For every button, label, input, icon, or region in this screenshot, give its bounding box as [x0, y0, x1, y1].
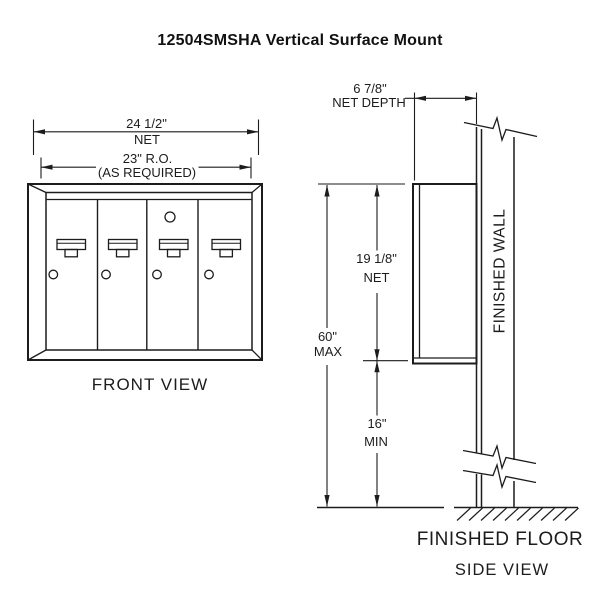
door-2-hardware: [102, 240, 137, 279]
overall-width-qualifier: NET: [87, 133, 207, 147]
front-view-label: FRONT VIEW: [90, 376, 210, 394]
card-pull-tab: [168, 250, 180, 257]
card-pull-tab: [65, 250, 77, 257]
finished-floor-label: FINISHED FLOOR: [400, 530, 600, 550]
floor-clearance-qualifier: MIN: [316, 435, 436, 449]
door-4-hardware: [205, 240, 241, 279]
rough-opening-qualifier: (AS REQUIRED): [87, 166, 207, 180]
floor-clearance-value: 16": [317, 417, 437, 431]
wall-break-mid-lower: [463, 465, 536, 487]
lock-cylinder: [205, 270, 214, 279]
unit-height-qualifier: NET: [317, 271, 437, 285]
wall-break-top: [464, 118, 537, 140]
lock-cylinder: [102, 270, 111, 279]
unit-height-value: 19 1/8": [317, 252, 437, 266]
card-pull-tab: [117, 250, 129, 257]
mailbox-front-frame: [28, 184, 262, 360]
net-depth-qualifier: NET DEPTH: [309, 96, 429, 110]
spec-drawing-page: 12504SMSHA Vertical Surface Mount: [0, 0, 600, 600]
side-view-label: SIDE VIEW: [402, 562, 600, 579]
master-lock-cylinder: [165, 212, 175, 222]
lock-cylinder: [153, 270, 162, 279]
net-depth-value: 6 7/8": [310, 82, 430, 96]
finished-floor-lines: [317, 508, 579, 521]
lock-cylinder: [49, 270, 58, 279]
finished-wall-label: FINISHED WALL: [491, 191, 511, 352]
mount-height-value: 60": [268, 330, 388, 344]
floor-hatching: [457, 508, 579, 521]
card-pull-tab: [220, 250, 232, 257]
side-view-drawing: [317, 93, 579, 521]
door-dividers: [98, 200, 199, 351]
door-3-hardware: [153, 212, 188, 279]
wall-break-mid-upper: [463, 446, 536, 468]
rough-opening-value: 23" R.O.: [88, 152, 208, 166]
overall-width-value: 24 1/2": [87, 117, 207, 131]
mount-height-qualifier: MAX: [268, 345, 388, 359]
door-1-hardware: [49, 240, 86, 279]
